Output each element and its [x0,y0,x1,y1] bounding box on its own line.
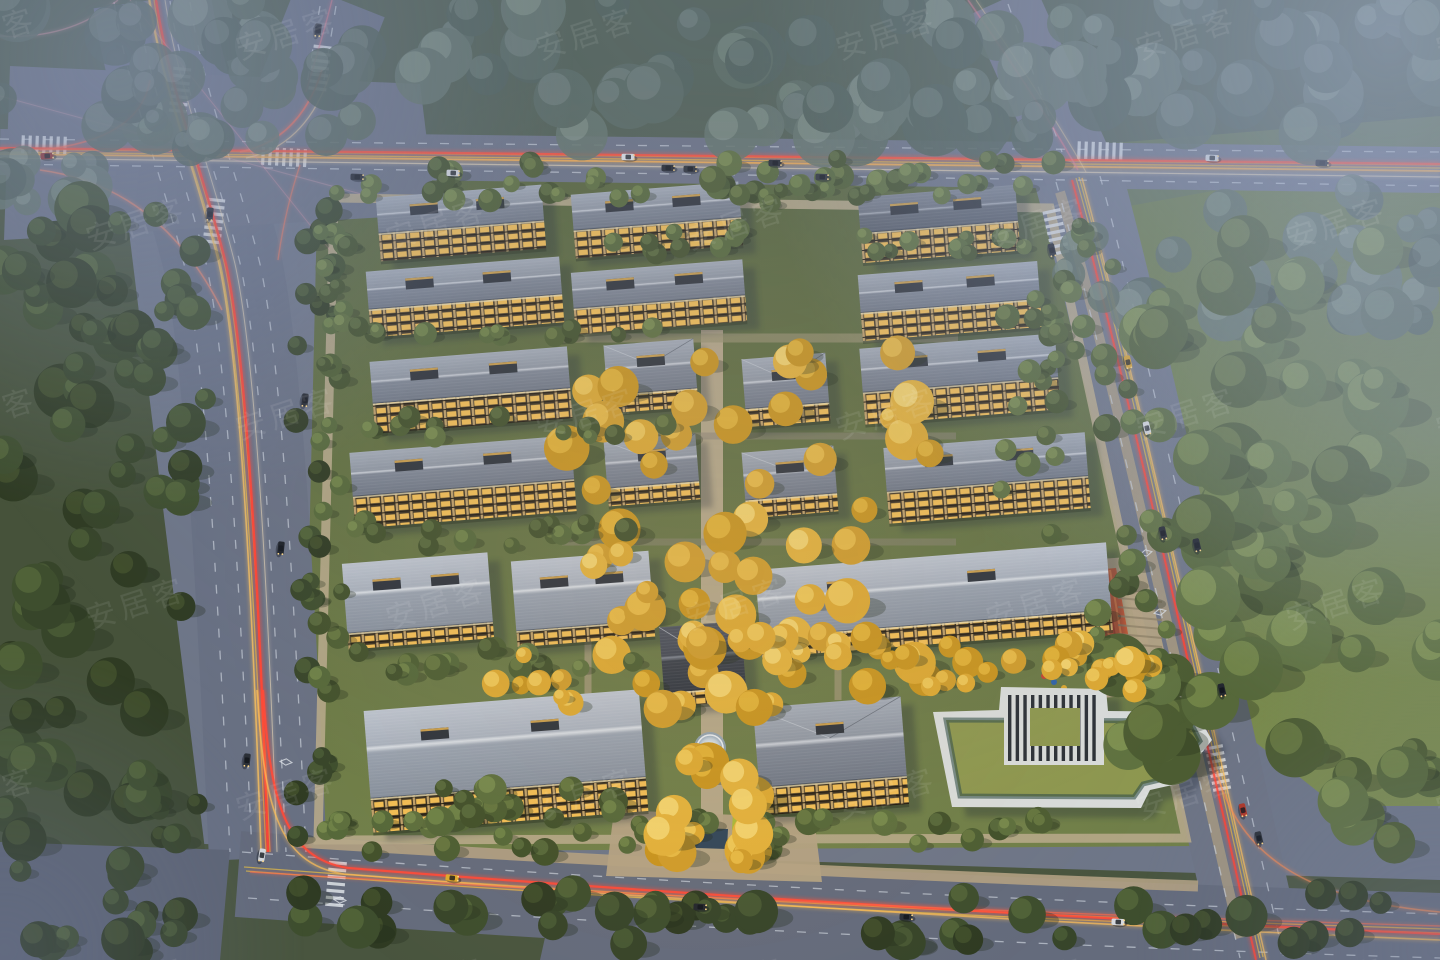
haze-layer [0,0,1440,960]
property-aerial-rendering: 安居客 安居客安居客安居客安居客安居客安居客安居客安居客安居客安居客安居客安居客… [0,0,1440,960]
rendering-canvas: 安居客 安居客安居客安居客安居客安居客安居客安居客安居客安居客安居客安居客安居客… [0,0,1440,960]
haze-overlay [180,40,1220,960]
